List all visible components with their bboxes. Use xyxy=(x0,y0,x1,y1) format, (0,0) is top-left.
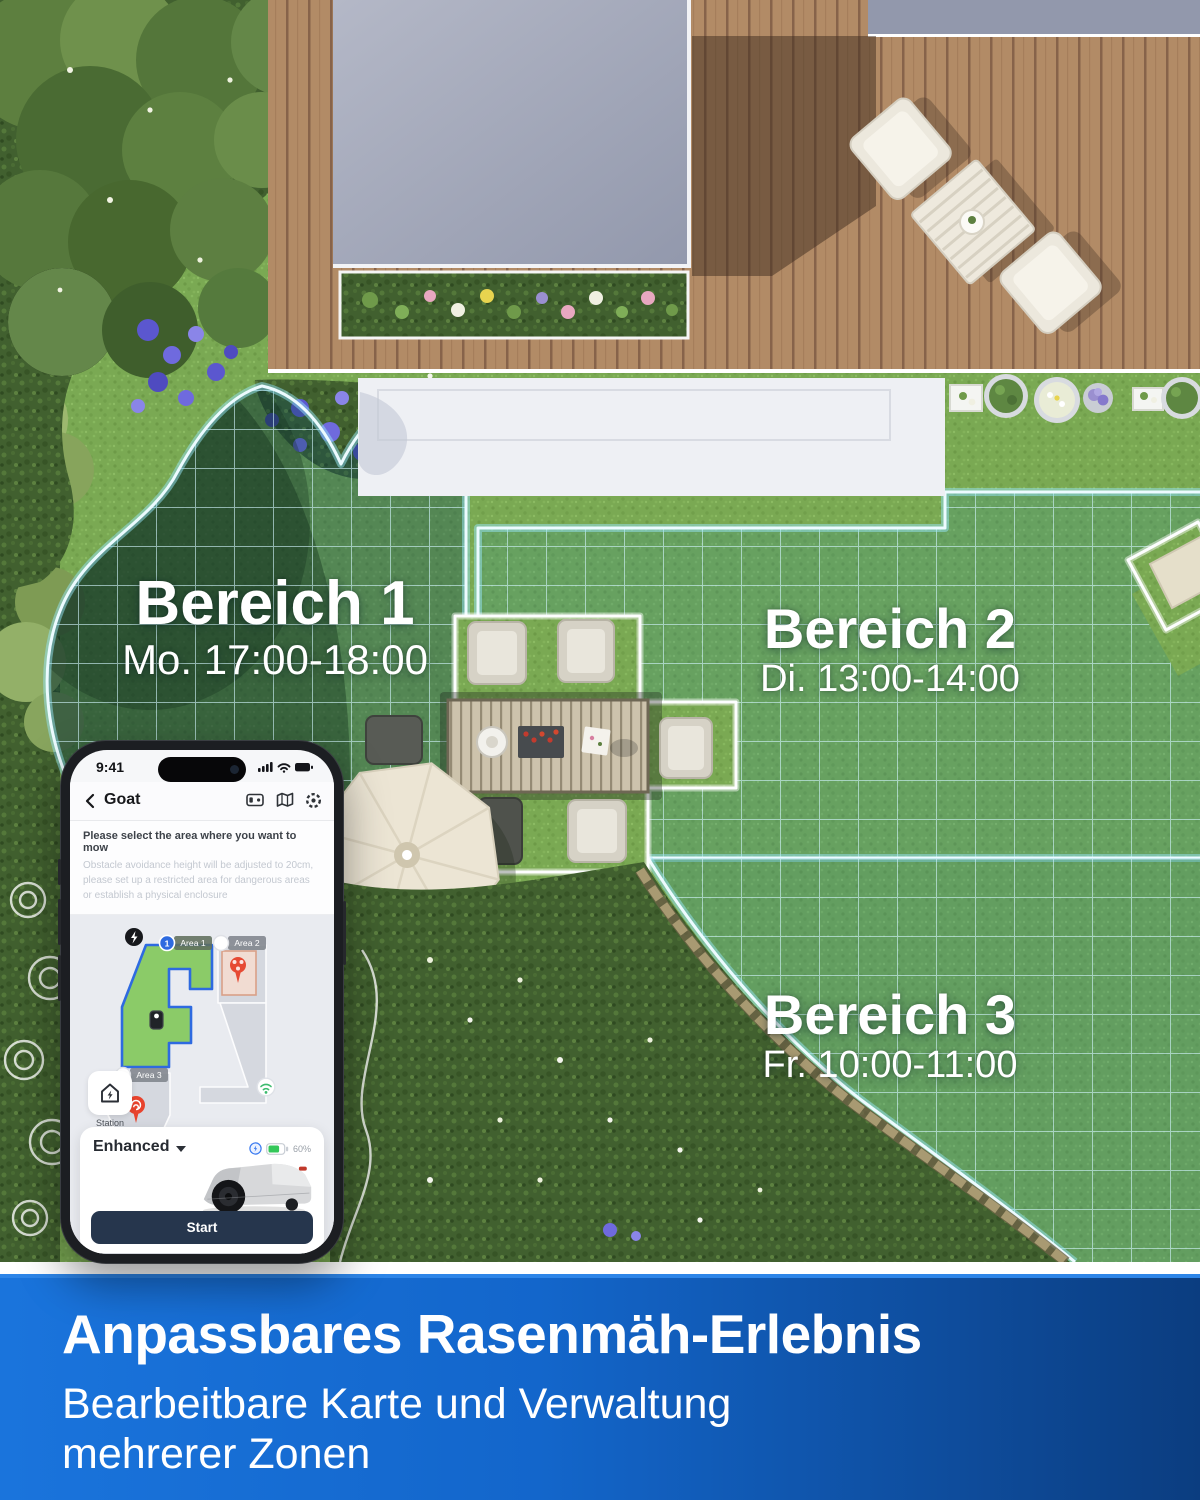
banner-subtitle: Bearbeitbare Karte und Verwaltung mehrer… xyxy=(62,1380,1200,1480)
power-button xyxy=(343,901,346,965)
area-2-label: Area 2 xyxy=(234,938,260,948)
mode-dropdown[interactable]: Enhanced xyxy=(93,1138,186,1156)
signal-icon xyxy=(258,762,273,772)
instruction-block: Please select the area where you want to… xyxy=(70,821,334,915)
chevron-left-icon xyxy=(87,795,93,807)
instruction-title: Please select the area where you want to… xyxy=(83,830,321,854)
battery-status: 60% xyxy=(249,1142,311,1155)
map-icon[interactable] xyxy=(276,792,294,808)
app-nav-bar: Goat xyxy=(70,782,334,821)
volume-up-button xyxy=(58,899,61,945)
zone-3-schedule: Fr. 10:00-11:00 xyxy=(700,1046,1080,1086)
station-button[interactable]: Station xyxy=(84,1071,136,1128)
area-1-label: Area 1 xyxy=(180,938,206,948)
area-3-label: Area 3 xyxy=(136,1070,162,1080)
status-icons xyxy=(258,760,314,778)
battery-percent: 60% xyxy=(293,1144,311,1154)
chevron-down-icon xyxy=(176,1146,186,1152)
settings-icon[interactable] xyxy=(305,792,322,809)
volume-down-button xyxy=(58,955,61,1001)
camera-lens xyxy=(230,765,239,774)
banner-subtitle-line-1: Bearbeitbare Karte und Verwaltung xyxy=(62,1380,1200,1430)
zone-3-label: Bereich 3 Fr. 10:00-11:00 xyxy=(700,986,1080,1086)
zone-1-name: Bereich 1 xyxy=(80,572,470,636)
robot-marker-icon xyxy=(150,1011,163,1029)
feature-banner: Anpassbares Rasenmäh-Erlebnis Bearbeitba… xyxy=(0,1274,1200,1500)
upper-roof-strip xyxy=(868,0,1200,36)
charging-badge-icon xyxy=(249,1142,262,1155)
instruction-body: Obstacle avoidance height will be adjust… xyxy=(83,858,321,903)
dynamic-island xyxy=(158,757,246,782)
mode-label: Enhanced xyxy=(93,1138,169,1156)
dock-icon[interactable] xyxy=(246,792,265,808)
house-roof xyxy=(333,0,690,268)
zone-2-label: Bereich 2 Di. 13:00-14:00 xyxy=(700,600,1080,700)
phone-screen: 9:41 xyxy=(70,750,334,1254)
patio xyxy=(358,378,945,496)
mow-control-card: Enhanced 60% xyxy=(80,1127,324,1253)
zone-1-schedule: Mo. 17:00-18:00 xyxy=(80,638,470,682)
map-area-1-region[interactable] xyxy=(122,945,212,1067)
zone-2-schedule: Di. 13:00-14:00 xyxy=(700,660,1080,700)
mute-switch xyxy=(58,859,61,885)
status-bar: 9:41 xyxy=(70,750,334,782)
banner-subtitle-line-2: mehrerer Zonen xyxy=(62,1430,1200,1480)
banner-title: Anpassbares Rasenmäh-Erlebnis xyxy=(62,1302,1200,1366)
product-marketing-image: Bereich 1 Mo. 17:00-18:00 Bereich 2 Di. … xyxy=(0,0,1200,1500)
battery-icon xyxy=(295,763,313,771)
phone-mockup: 9:41 xyxy=(60,740,344,1264)
back-button[interactable] xyxy=(82,792,100,810)
zone-2-name: Bereich 2 xyxy=(700,600,1080,658)
status-time: 9:41 xyxy=(96,759,124,775)
start-label: Start xyxy=(187,1220,218,1235)
mow-map-area: Area 1 1 Area 2 Area 3 xyxy=(70,915,334,1254)
charging-station-icon xyxy=(125,928,143,946)
house-and-deck xyxy=(268,0,1200,373)
wifi-icon xyxy=(279,764,290,773)
start-button[interactable]: Start xyxy=(91,1211,313,1244)
zone-3-name: Bereich 3 xyxy=(700,986,1080,1044)
battery-level-icon xyxy=(266,1143,289,1155)
area-1-index: 1 xyxy=(165,938,170,948)
map-corridor-region xyxy=(200,1003,266,1103)
planter-strip xyxy=(340,272,688,338)
app-title: Goat xyxy=(104,791,140,809)
station-house-icon xyxy=(98,1081,122,1105)
zone-1-label: Bereich 1 Mo. 17:00-18:00 xyxy=(80,572,470,682)
wifi-pin-icon xyxy=(257,1078,275,1096)
